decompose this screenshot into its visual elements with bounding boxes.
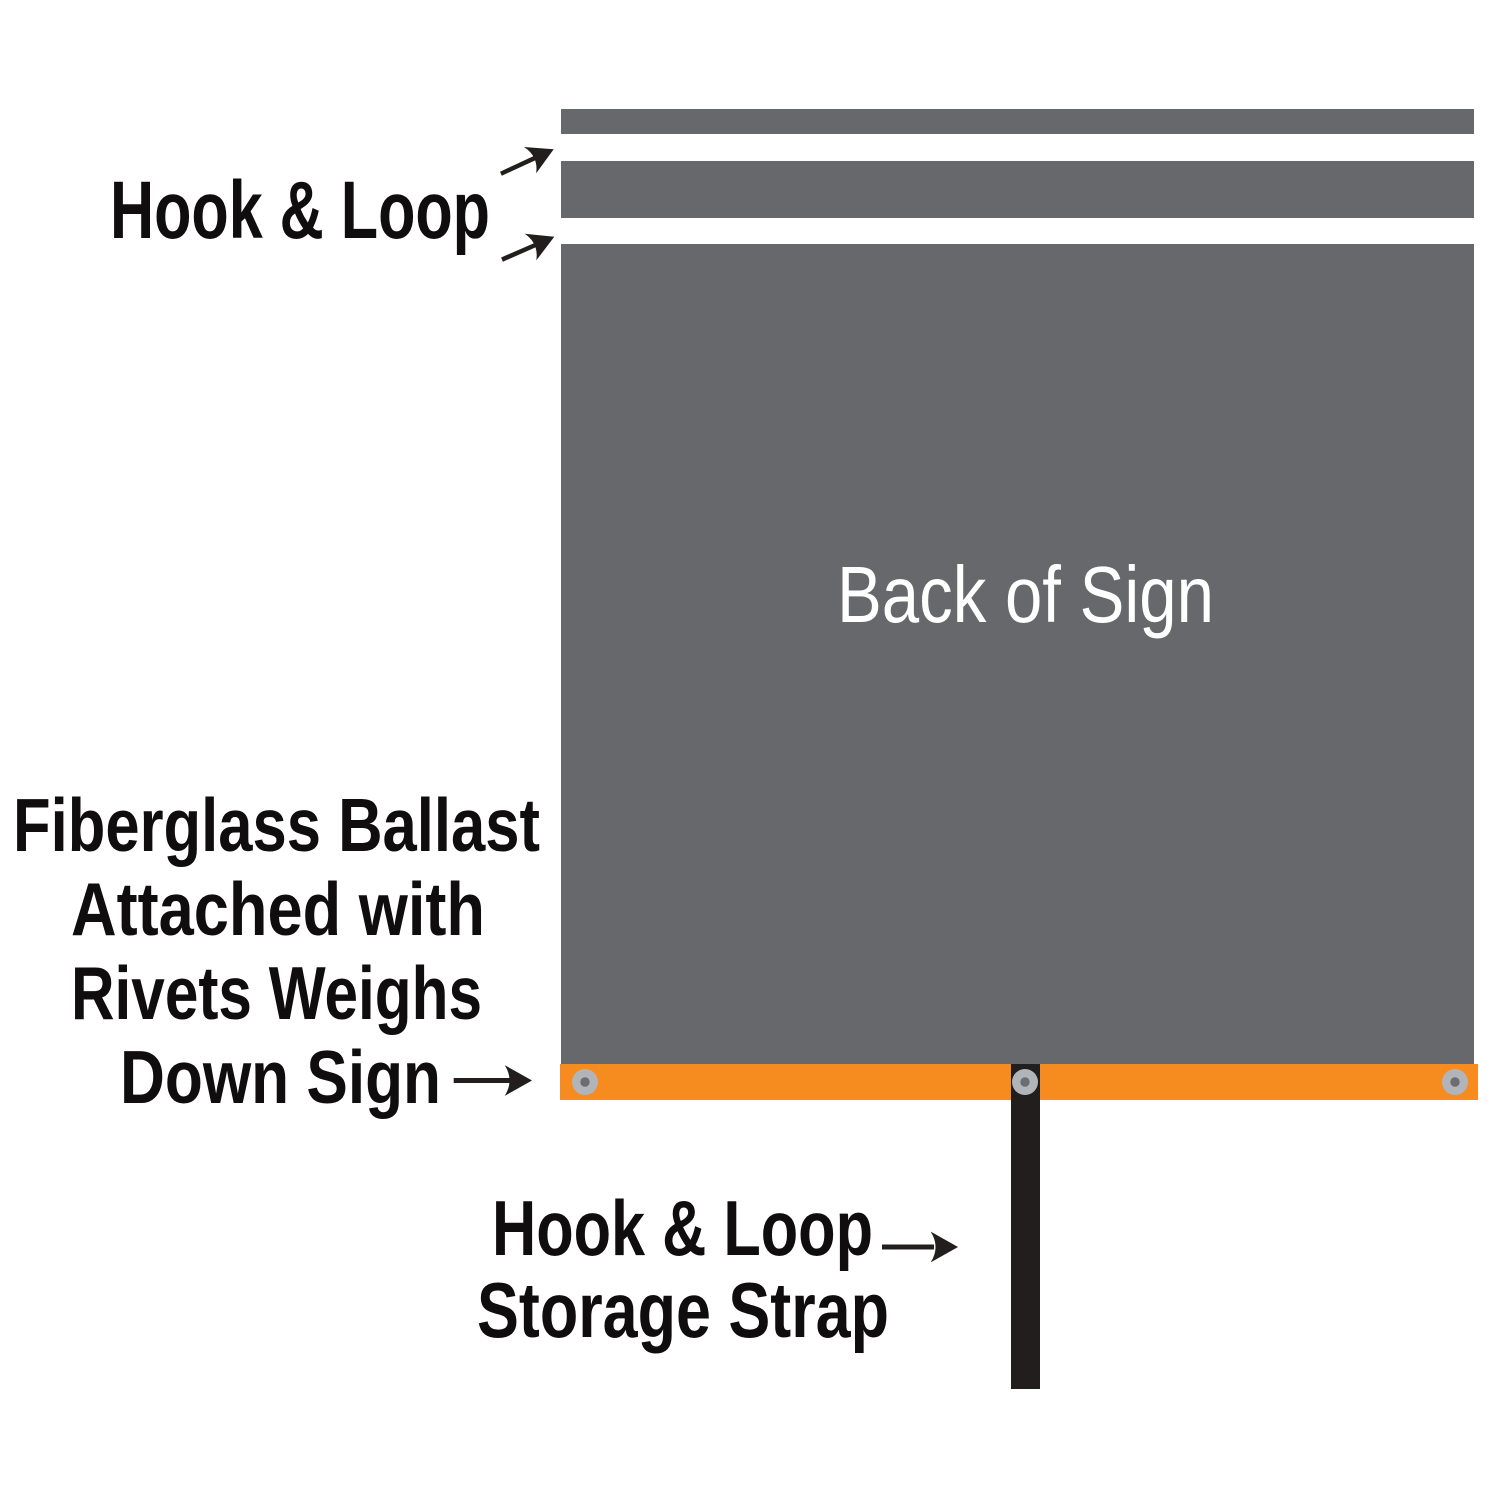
svg-text:Back of Sign: Back of Sign <box>837 550 1214 639</box>
svg-text:Storage Strap: Storage Strap <box>477 1266 889 1354</box>
svg-text:Attached with: Attached with <box>71 867 485 951</box>
svg-text:Rivets Weighs: Rivets Weighs <box>71 951 482 1035</box>
svg-text:Hook & Loop: Hook & Loop <box>492 1184 873 1272</box>
svg-text:Down Sign: Down Sign <box>120 1035 441 1119</box>
svg-text:Fiberglass Ballast: Fiberglass Ballast <box>13 783 540 867</box>
svg-text:Hook & Loop: Hook & Loop <box>110 165 490 256</box>
